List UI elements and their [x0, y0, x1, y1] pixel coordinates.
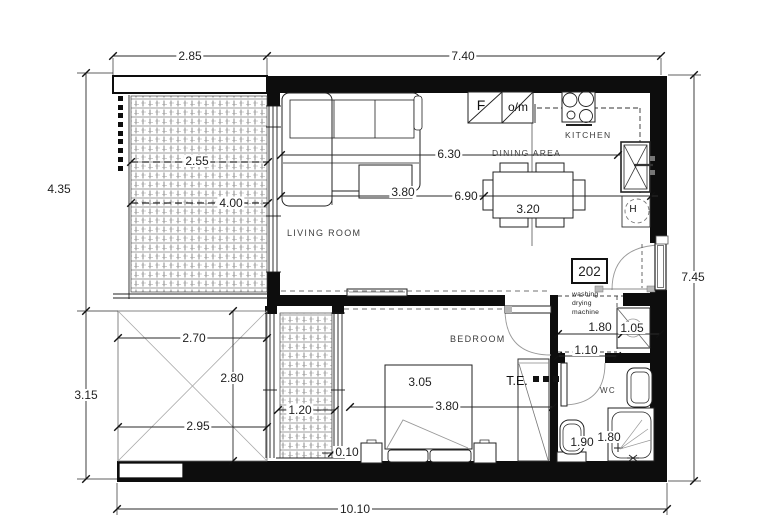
- wall-hall-corner: [623, 293, 650, 306]
- dim-dining-length: 3.20: [514, 203, 541, 215]
- floor-plan: 2.85 7.40 4.35 3.15 7.45 10.10 2.55 4.00…: [0, 0, 778, 522]
- dim-hall-depth: 1.10: [572, 344, 599, 356]
- dim-left-lower-height: 3.15: [72, 389, 99, 401]
- dim-wall-gap: 0.10: [333, 446, 360, 458]
- dim-left-upper-height: 4.35: [45, 183, 72, 195]
- water-heater-label: H: [629, 205, 636, 215]
- unit-number-badge: 202: [571, 258, 608, 284]
- bottom-wall-window: [119, 463, 183, 478]
- floor-plan-drawing: [0, 0, 778, 522]
- dim-wc-depth: 1.90: [568, 436, 595, 448]
- electrical-panel-icon: [533, 376, 559, 382]
- balcony-upper: [113, 95, 268, 299]
- wall-right-upper: [650, 93, 667, 243]
- room-label-kitchen: KITCHEN: [565, 131, 611, 140]
- dim-balcony-inner-width: 2.55: [183, 155, 210, 167]
- cooktop-icon: [562, 92, 595, 126]
- railing-posts: [118, 96, 123, 171]
- dim-bottom-total-width: 10.10: [338, 503, 372, 515]
- dining-set: [483, 163, 585, 227]
- dim-side-balcony-width: 1.20: [286, 404, 313, 416]
- bedroom-door: [505, 306, 551, 355]
- wall-window-stub-top: [267, 93, 280, 106]
- dim-terrace-bottom-width: 2.95: [184, 420, 211, 432]
- wall-wc-right: [605, 353, 650, 363]
- dim-terrace-height: 2.80: [218, 372, 245, 384]
- oven-microwave-label: o/m: [508, 101, 528, 113]
- kitchen-sink-icon: [621, 142, 655, 192]
- dim-terrace-top-width: 2.70: [180, 332, 207, 344]
- dim-top-balcony-width: 2.85: [176, 50, 203, 62]
- room-label-living-room: LIVING ROOM: [287, 229, 361, 238]
- balcony-side: [276, 313, 345, 458]
- dim-top-main-width: 7.40: [449, 50, 476, 62]
- washer-note: washing drying machine: [572, 290, 599, 317]
- bedroom-window: [331, 313, 345, 458]
- wall-window-stub-bottom: [267, 272, 280, 295]
- balcony-parapet: [113, 76, 267, 93]
- wall-top: [267, 76, 667, 93]
- living-room-window: [266, 106, 281, 272]
- fridge-label: F: [477, 98, 486, 112]
- unit-number: 202: [578, 264, 601, 279]
- dim-bedroom-width: 3.80: [433, 400, 460, 412]
- pillow: [388, 450, 428, 462]
- dim-niche-depth: 1.05: [618, 322, 645, 334]
- room-label-bedroom: BEDROOM: [450, 335, 506, 344]
- wc-sink-icon: [627, 368, 652, 407]
- dim-interior-width: 6.90: [452, 190, 479, 202]
- dim-wc-width: 1.80: [595, 431, 622, 443]
- tv-stand: [347, 289, 407, 296]
- wall-living-bedroom: [267, 295, 505, 306]
- dim-living-dining-length: 6.30: [435, 148, 462, 160]
- room-label-wc: WC: [600, 387, 616, 395]
- wall-bottom: [117, 461, 667, 482]
- dim-bedroom-depth: 3.05: [408, 376, 431, 388]
- room-label-dining-area: DINING AREA: [492, 149, 561, 158]
- dim-right-height: 7.45: [679, 271, 706, 283]
- dim-balcony-inner-length: 4.00: [217, 197, 244, 209]
- pillow: [430, 450, 471, 462]
- wc-door: [561, 363, 605, 406]
- dim-living-width: 3.80: [389, 186, 416, 198]
- electrical-panel-label: T.E.: [506, 375, 528, 388]
- dim-hall-width: 1.80: [586, 321, 613, 333]
